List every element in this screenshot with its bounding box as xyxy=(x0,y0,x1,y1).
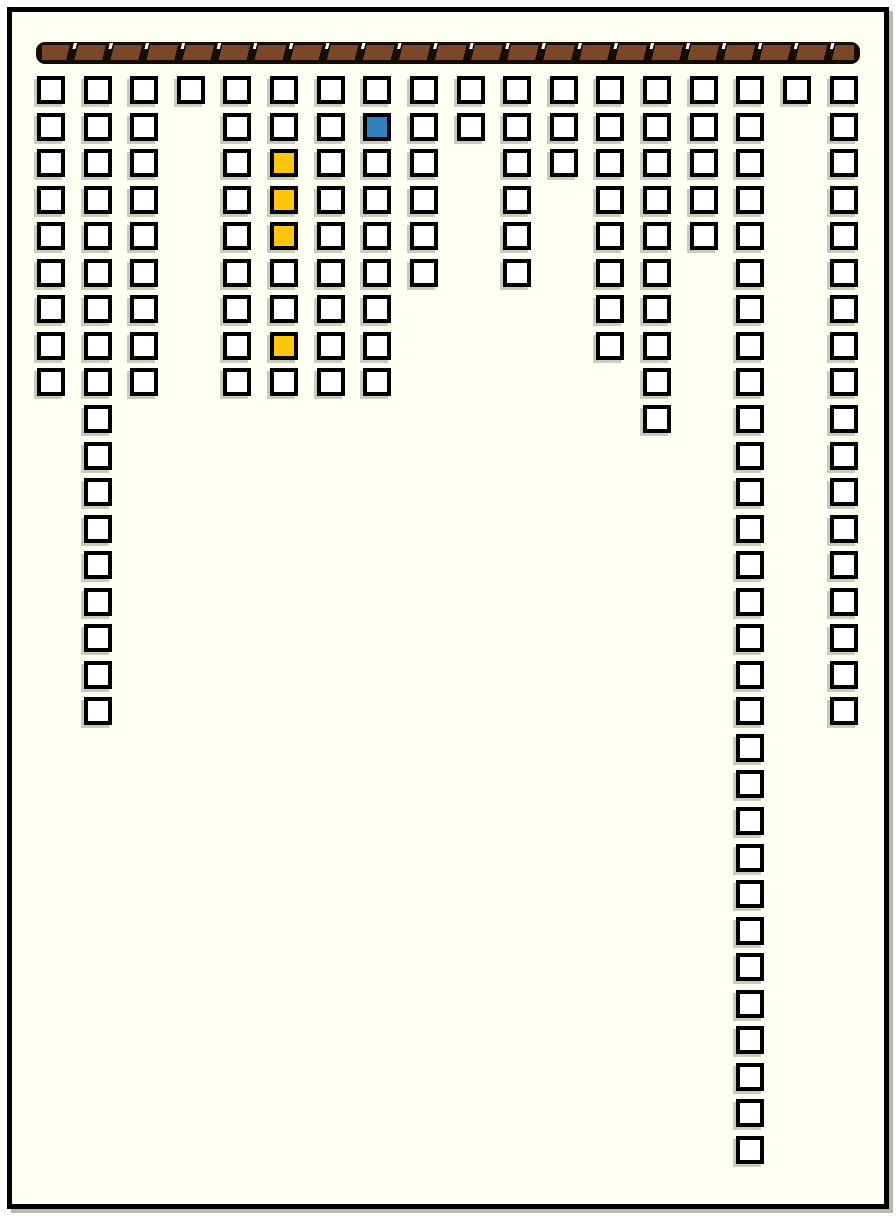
grid-cell-c6-r7[interactable] xyxy=(270,295,298,323)
grid-cell-c16-r28[interactable] xyxy=(736,1063,764,1091)
grid-cell-c13-r7[interactable] xyxy=(596,295,624,323)
grid-cell-c13-r2[interactable] xyxy=(596,113,624,141)
grid-cell-c2-r17[interactable] xyxy=(84,661,112,689)
grid-cell-c6-r4-yellow[interactable] xyxy=(270,186,298,214)
grid-cell-c2-r1[interactable] xyxy=(84,76,112,104)
grid-cell-c2-r13[interactable] xyxy=(84,515,112,543)
grid-cell-c14-r2[interactable] xyxy=(643,113,671,141)
grid-cell-c16-r10[interactable] xyxy=(736,405,764,433)
grid-cell-c18-r14[interactable] xyxy=(830,551,858,579)
grid-cell-c2-r11[interactable] xyxy=(84,442,112,470)
grid-cell-c16-r12[interactable] xyxy=(736,478,764,506)
grid-cell-c12-r1[interactable] xyxy=(550,76,578,104)
grid-cell-c18-r7[interactable] xyxy=(830,295,858,323)
grid-cell-c7-r2[interactable] xyxy=(317,113,345,141)
grid-cell-c13-r8[interactable] xyxy=(596,332,624,360)
grid-cell-c16-r2[interactable] xyxy=(736,113,764,141)
grid-cell-c5-r1[interactable] xyxy=(223,76,251,104)
grid-cell-c5-r5[interactable] xyxy=(223,222,251,250)
grid-cell-c6-r5-yellow[interactable] xyxy=(270,222,298,250)
cell-grid xyxy=(12,12,884,1204)
grid-cell-c16-r23[interactable] xyxy=(736,880,764,908)
grid-cell-c18-r3[interactable] xyxy=(830,149,858,177)
grid-cell-c2-r3[interactable] xyxy=(84,149,112,177)
grid-cell-c11-r3[interactable] xyxy=(503,149,531,177)
grid-cell-c8-r1[interactable] xyxy=(363,76,391,104)
grid-cell-c10-r2[interactable] xyxy=(457,113,485,141)
grid-cell-c14-r10[interactable] xyxy=(643,405,671,433)
grid-cell-c18-r16[interactable] xyxy=(830,624,858,652)
grid-cell-c10-r1[interactable] xyxy=(457,76,485,104)
grid-cell-c4-r1[interactable] xyxy=(177,76,205,104)
grid-cell-c16-r6[interactable] xyxy=(736,259,764,287)
grid-cell-c2-r2[interactable] xyxy=(84,113,112,141)
grid-cell-c2-r6[interactable] xyxy=(84,259,112,287)
grid-cell-c1-r9[interactable] xyxy=(37,368,65,396)
grid-cell-c16-r1[interactable] xyxy=(736,76,764,104)
grid-cell-c13-r1[interactable] xyxy=(596,76,624,104)
grid-cell-c18-r8[interactable] xyxy=(830,332,858,360)
grid-cell-c18-r2[interactable] xyxy=(830,113,858,141)
grid-cell-c18-r5[interactable] xyxy=(830,222,858,250)
grid-cell-c2-r12[interactable] xyxy=(84,478,112,506)
grid-cell-c14-r3[interactable] xyxy=(643,149,671,177)
grid-cell-c11-r5[interactable] xyxy=(503,222,531,250)
grid-cell-c12-r3[interactable] xyxy=(550,149,578,177)
grid-cell-c1-r3[interactable] xyxy=(37,149,65,177)
grid-cell-c8-r3[interactable] xyxy=(363,149,391,177)
grid-cell-c6-r3-yellow[interactable] xyxy=(270,149,298,177)
grid-cell-c3-r9[interactable] xyxy=(130,368,158,396)
grid-cell-c14-r1[interactable] xyxy=(643,76,671,104)
grid-cell-c16-r25[interactable] xyxy=(736,953,764,981)
grid-cell-c18-r12[interactable] xyxy=(830,478,858,506)
grid-cell-c7-r9[interactable] xyxy=(317,368,345,396)
board-frame xyxy=(7,7,889,1209)
grid-cell-c16-r29[interactable] xyxy=(736,1099,764,1127)
grid-cell-c16-r22[interactable] xyxy=(736,844,764,872)
grid-cell-c2-r7[interactable] xyxy=(84,295,112,323)
grid-cell-c6-r9[interactable] xyxy=(270,368,298,396)
grid-cell-c16-r13[interactable] xyxy=(736,515,764,543)
grid-cell-c7-r3[interactable] xyxy=(317,149,345,177)
grid-cell-c1-r5[interactable] xyxy=(37,222,65,250)
grid-cell-c15-r4[interactable] xyxy=(690,186,718,214)
grid-cell-c2-r10[interactable] xyxy=(84,405,112,433)
grid-cell-c2-r5[interactable] xyxy=(84,222,112,250)
grid-cell-c7-r5[interactable] xyxy=(317,222,345,250)
grid-cell-c15-r2[interactable] xyxy=(690,113,718,141)
grid-cell-c3-r6[interactable] xyxy=(130,259,158,287)
grid-cell-c18-r15[interactable] xyxy=(830,588,858,616)
grid-cell-c15-r3[interactable] xyxy=(690,149,718,177)
grid-cell-c11-r6[interactable] xyxy=(503,259,531,287)
grid-cell-c5-r2[interactable] xyxy=(223,113,251,141)
grid-cell-c16-r11[interactable] xyxy=(736,442,764,470)
grid-cell-c8-r5[interactable] xyxy=(363,222,391,250)
grid-cell-c8-r8[interactable] xyxy=(363,332,391,360)
grid-cell-c9-r6[interactable] xyxy=(410,259,438,287)
grid-cell-c18-r13[interactable] xyxy=(830,515,858,543)
grid-cell-c18-r10[interactable] xyxy=(830,405,858,433)
grid-cell-c14-r7[interactable] xyxy=(643,295,671,323)
grid-cell-c16-r3[interactable] xyxy=(736,149,764,177)
grid-cell-c18-r9[interactable] xyxy=(830,368,858,396)
grid-cell-c13-r3[interactable] xyxy=(596,149,624,177)
grid-cell-c9-r4[interactable] xyxy=(410,186,438,214)
grid-cell-c8-r9[interactable] xyxy=(363,368,391,396)
grid-cell-c13-r5[interactable] xyxy=(596,222,624,250)
grid-cell-c16-r8[interactable] xyxy=(736,332,764,360)
grid-cell-c3-r8[interactable] xyxy=(130,332,158,360)
grid-cell-c7-r1[interactable] xyxy=(317,76,345,104)
grid-cell-c1-r2[interactable] xyxy=(37,113,65,141)
grid-cell-c5-r3[interactable] xyxy=(223,149,251,177)
grid-cell-c6-r1[interactable] xyxy=(270,76,298,104)
grid-cell-c1-r1[interactable] xyxy=(37,76,65,104)
grid-cell-c5-r8[interactable] xyxy=(223,332,251,360)
stage xyxy=(0,0,896,1217)
grid-cell-c6-r8-yellow[interactable] xyxy=(270,332,298,360)
grid-cell-c18-r17[interactable] xyxy=(830,661,858,689)
grid-cell-c3-r3[interactable] xyxy=(130,149,158,177)
grid-cell-c18-r4[interactable] xyxy=(830,186,858,214)
grid-cell-c16-r24[interactable] xyxy=(736,917,764,945)
grid-cell-c2-r15[interactable] xyxy=(84,588,112,616)
grid-cell-c1-r7[interactable] xyxy=(37,295,65,323)
grid-cell-c2-r16[interactable] xyxy=(84,624,112,652)
grid-cell-c16-r9[interactable] xyxy=(736,368,764,396)
grid-cell-c8-r4[interactable] xyxy=(363,186,391,214)
grid-cell-c16-r21[interactable] xyxy=(736,807,764,835)
grid-cell-c16-r5[interactable] xyxy=(736,222,764,250)
grid-cell-c2-r18[interactable] xyxy=(84,697,112,725)
grid-cell-c2-r14[interactable] xyxy=(84,551,112,579)
grid-cell-c14-r9[interactable] xyxy=(643,368,671,396)
grid-cell-c17-r1[interactable] xyxy=(783,76,811,104)
grid-cell-c14-r5[interactable] xyxy=(643,222,671,250)
grid-cell-c16-r27[interactable] xyxy=(736,1026,764,1054)
grid-cell-c16-r7[interactable] xyxy=(736,295,764,323)
grid-cell-c15-r1[interactable] xyxy=(690,76,718,104)
grid-cell-c18-r6[interactable] xyxy=(830,259,858,287)
grid-cell-c7-r8[interactable] xyxy=(317,332,345,360)
grid-cell-c5-r9[interactable] xyxy=(223,368,251,396)
grid-cell-c16-r17[interactable] xyxy=(736,661,764,689)
grid-cell-c7-r6[interactable] xyxy=(317,259,345,287)
grid-cell-c7-r4[interactable] xyxy=(317,186,345,214)
grid-cell-c3-r5[interactable] xyxy=(130,222,158,250)
grid-cell-c15-r5[interactable] xyxy=(690,222,718,250)
grid-cell-c9-r3[interactable] xyxy=(410,149,438,177)
grid-cell-c3-r7[interactable] xyxy=(130,295,158,323)
grid-cell-c13-r6[interactable] xyxy=(596,259,624,287)
grid-cell-c14-r4[interactable] xyxy=(643,186,671,214)
grid-cell-c3-r1[interactable] xyxy=(130,76,158,104)
grid-cell-c1-r4[interactable] xyxy=(37,186,65,214)
grid-cell-c14-r6[interactable] xyxy=(643,259,671,287)
grid-cell-c9-r5[interactable] xyxy=(410,222,438,250)
grid-cell-c11-r4[interactable] xyxy=(503,186,531,214)
grid-cell-c16-r18[interactable] xyxy=(736,697,764,725)
grid-cell-c18-r11[interactable] xyxy=(830,442,858,470)
grid-cell-c16-r30[interactable] xyxy=(736,1136,764,1164)
grid-cell-c16-r26[interactable] xyxy=(736,990,764,1018)
grid-cell-c5-r7[interactable] xyxy=(223,295,251,323)
grid-cell-c5-r6[interactable] xyxy=(223,259,251,287)
grid-cell-c2-r4[interactable] xyxy=(84,186,112,214)
grid-cell-c3-r4[interactable] xyxy=(130,186,158,214)
grid-cell-c11-r1[interactable] xyxy=(503,76,531,104)
grid-cell-c8-r2-blue[interactable] xyxy=(363,113,391,141)
grid-cell-c2-r8[interactable] xyxy=(84,332,112,360)
grid-cell-c1-r8[interactable] xyxy=(37,332,65,360)
grid-cell-c16-r20[interactable] xyxy=(736,770,764,798)
grid-cell-c3-r2[interactable] xyxy=(130,113,158,141)
grid-cell-c16-r19[interactable] xyxy=(736,734,764,762)
grid-cell-c8-r6[interactable] xyxy=(363,259,391,287)
grid-cell-c16-r15[interactable] xyxy=(736,588,764,616)
grid-cell-c9-r2[interactable] xyxy=(410,113,438,141)
grid-cell-c18-r18[interactable] xyxy=(830,697,858,725)
grid-cell-c6-r2[interactable] xyxy=(270,113,298,141)
grid-cell-c16-r16[interactable] xyxy=(736,624,764,652)
grid-cell-c11-r2[interactable] xyxy=(503,113,531,141)
grid-cell-c7-r7[interactable] xyxy=(317,295,345,323)
grid-cell-c16-r4[interactable] xyxy=(736,186,764,214)
grid-cell-c1-r6[interactable] xyxy=(37,259,65,287)
grid-cell-c16-r14[interactable] xyxy=(736,551,764,579)
grid-cell-c6-r6[interactable] xyxy=(270,259,298,287)
grid-cell-c14-r8[interactable] xyxy=(643,332,671,360)
grid-cell-c9-r1[interactable] xyxy=(410,76,438,104)
grid-cell-c13-r4[interactable] xyxy=(596,186,624,214)
grid-cell-c2-r9[interactable] xyxy=(84,368,112,396)
grid-cell-c18-r1[interactable] xyxy=(830,76,858,104)
grid-cell-c8-r7[interactable] xyxy=(363,295,391,323)
grid-cell-c12-r2[interactable] xyxy=(550,113,578,141)
grid-cell-c5-r4[interactable] xyxy=(223,186,251,214)
